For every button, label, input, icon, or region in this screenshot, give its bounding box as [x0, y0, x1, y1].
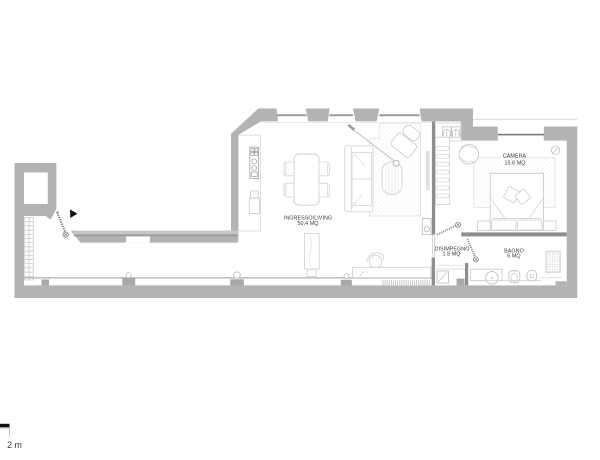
svg-text:6 MQ: 6 MQ [507, 253, 520, 259]
svg-text:CAMERA: CAMERA [503, 154, 527, 160]
svg-text:1.8 MQ: 1.8 MQ [443, 252, 461, 258]
svg-text:50.4 MQ: 50.4 MQ [297, 221, 318, 227]
svg-text:2 m: 2 m [7, 440, 22, 450]
svg-text:15.6 MQ: 15.6 MQ [504, 160, 525, 166]
